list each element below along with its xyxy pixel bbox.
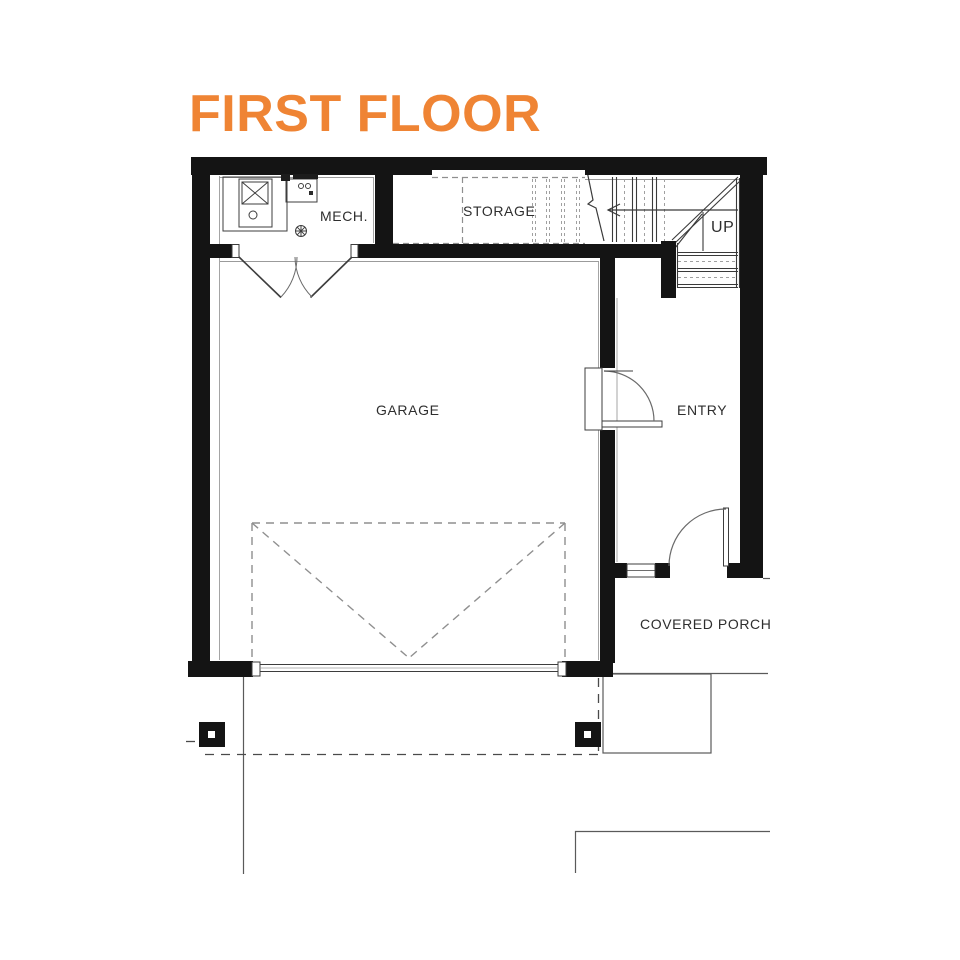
wall-mid-left: [210, 244, 232, 258]
porch-posts: [199, 722, 601, 747]
sidewalk-corner: [576, 832, 771, 874]
upper-treads-dashed: [533, 179, 580, 243]
wall-garage-entry-lower: [600, 430, 615, 663]
garage-door: [260, 665, 558, 672]
wall-garage-entry-upper: [600, 244, 615, 368]
room-label-garage: GARAGE: [376, 402, 440, 418]
overhead-garage-door-symbol: [252, 523, 565, 659]
room-label-porch: COVERED PORCH: [640, 616, 771, 632]
wall-mid-right: [357, 244, 662, 258]
stair-break-line: [587, 171, 604, 241]
wall-entry-bottom-a: [602, 563, 627, 578]
wall-left: [192, 157, 210, 663]
room-label-storage: STORAGE: [463, 203, 535, 219]
wall-mech-divider: [375, 175, 393, 245]
floor-plan-page: FIRST FLOOR: [0, 0, 960, 960]
floor-drain-icon: [296, 226, 307, 237]
mech-fixtures: [223, 174, 318, 237]
room-label-entry: ENTRY: [677, 402, 727, 418]
stair-up-arrow: [608, 204, 738, 216]
wall-garage-bottom-left: [188, 661, 253, 677]
wall-right: [740, 157, 763, 578]
wall-entry-bottom-b: [655, 563, 670, 578]
wall-top-notch: [432, 170, 585, 176]
floor-plan-drawing: [0, 0, 960, 960]
wall-stair-return: [661, 241, 676, 298]
equipment-panel-icon: [286, 179, 317, 202]
wall-entry-bottom-c: [727, 563, 763, 578]
lower-treads-dashed: [678, 262, 738, 278]
room-label-mech: MECH.: [320, 208, 368, 224]
double-door-symbol: [239, 257, 352, 298]
interior-door-symbol: [585, 368, 662, 430]
staircase: [393, 171, 740, 288]
room-label-up: UP: [711, 219, 734, 237]
sidelite-window: [627, 564, 655, 577]
front-door-symbol: [669, 508, 729, 566]
winder-treads: [672, 177, 740, 251]
wall-garage-bottom-right: [562, 661, 613, 677]
door-jambs: [232, 245, 566, 677]
canopy-dashed-outline: [186, 678, 599, 755]
walkway-step: [603, 674, 711, 753]
